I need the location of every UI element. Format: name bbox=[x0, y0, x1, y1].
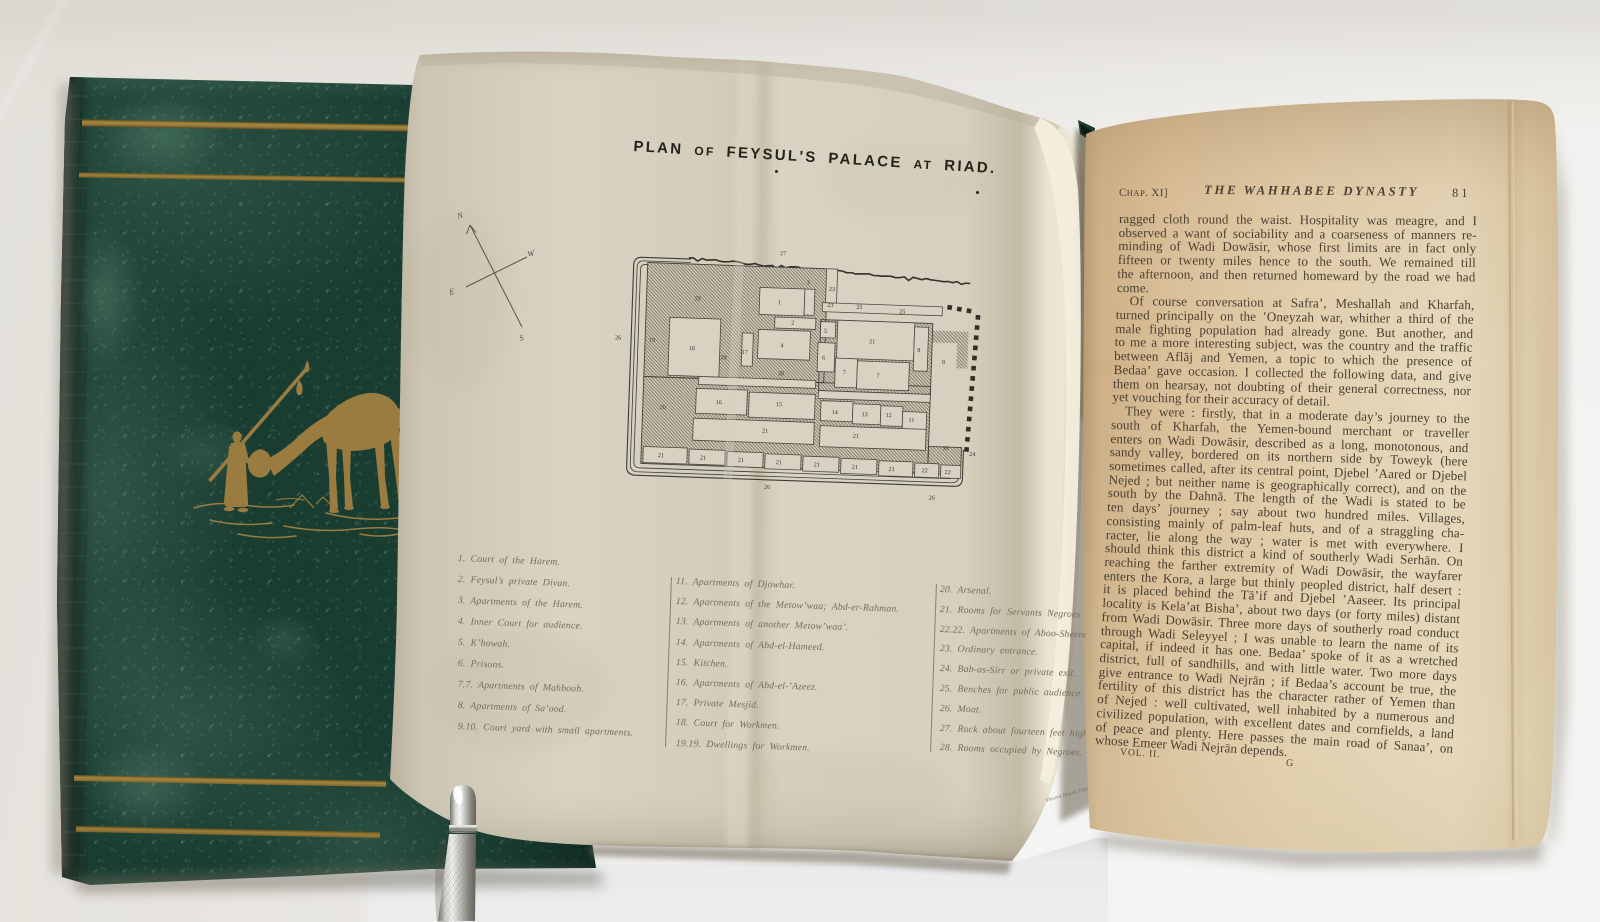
svg-text:14: 14 bbox=[831, 409, 837, 416]
svg-text:22: 22 bbox=[944, 469, 950, 476]
svg-text:13: 13 bbox=[861, 411, 867, 418]
svg-text:16: 16 bbox=[716, 399, 722, 406]
svg-text:6: 6 bbox=[822, 355, 825, 362]
svg-text:25: 25 bbox=[899, 308, 905, 315]
svg-text:21: 21 bbox=[814, 461, 820, 468]
svg-text:21: 21 bbox=[700, 454, 706, 461]
svg-text:26: 26 bbox=[929, 494, 935, 501]
svg-text:3: 3 bbox=[807, 279, 810, 286]
svg-text:21: 21 bbox=[888, 466, 894, 473]
svg-text:28: 28 bbox=[720, 354, 726, 361]
svg-text:21: 21 bbox=[658, 452, 664, 459]
svg-text:9: 9 bbox=[942, 359, 945, 366]
svg-text:15: 15 bbox=[776, 401, 782, 408]
svg-text:25: 25 bbox=[856, 304, 862, 311]
svg-text:11: 11 bbox=[908, 417, 914, 424]
svg-text:10: 10 bbox=[942, 445, 948, 452]
svg-text:27: 27 bbox=[780, 250, 786, 257]
svg-text:26: 26 bbox=[615, 334, 621, 341]
svg-text:7: 7 bbox=[842, 369, 845, 376]
svg-text:2: 2 bbox=[791, 320, 794, 327]
svg-text:21: 21 bbox=[852, 464, 858, 471]
svg-text:19: 19 bbox=[649, 337, 655, 344]
svg-text:7: 7 bbox=[876, 373, 879, 380]
svg-text:21: 21 bbox=[762, 428, 768, 435]
svg-text:24: 24 bbox=[969, 451, 975, 458]
svg-text:21: 21 bbox=[776, 459, 782, 466]
svg-text:4: 4 bbox=[780, 342, 783, 349]
svg-text:19: 19 bbox=[694, 295, 700, 302]
svg-text:17: 17 bbox=[741, 349, 747, 356]
svg-text:20: 20 bbox=[660, 404, 666, 411]
svg-text:21: 21 bbox=[869, 338, 875, 345]
svg-text:12: 12 bbox=[885, 412, 891, 419]
svg-text:26: 26 bbox=[764, 484, 770, 491]
svg-text:21: 21 bbox=[738, 457, 744, 464]
svg-text:5: 5 bbox=[824, 328, 827, 335]
svg-text:8: 8 bbox=[917, 347, 920, 354]
svg-text:18: 18 bbox=[689, 345, 695, 352]
svg-text:28: 28 bbox=[778, 370, 784, 377]
svg-text:23: 23 bbox=[827, 302, 833, 309]
svg-text:21: 21 bbox=[853, 433, 859, 440]
svg-text:22: 22 bbox=[921, 467, 927, 474]
svg-text:1: 1 bbox=[778, 299, 781, 306]
svg-text:23: 23 bbox=[829, 286, 835, 293]
